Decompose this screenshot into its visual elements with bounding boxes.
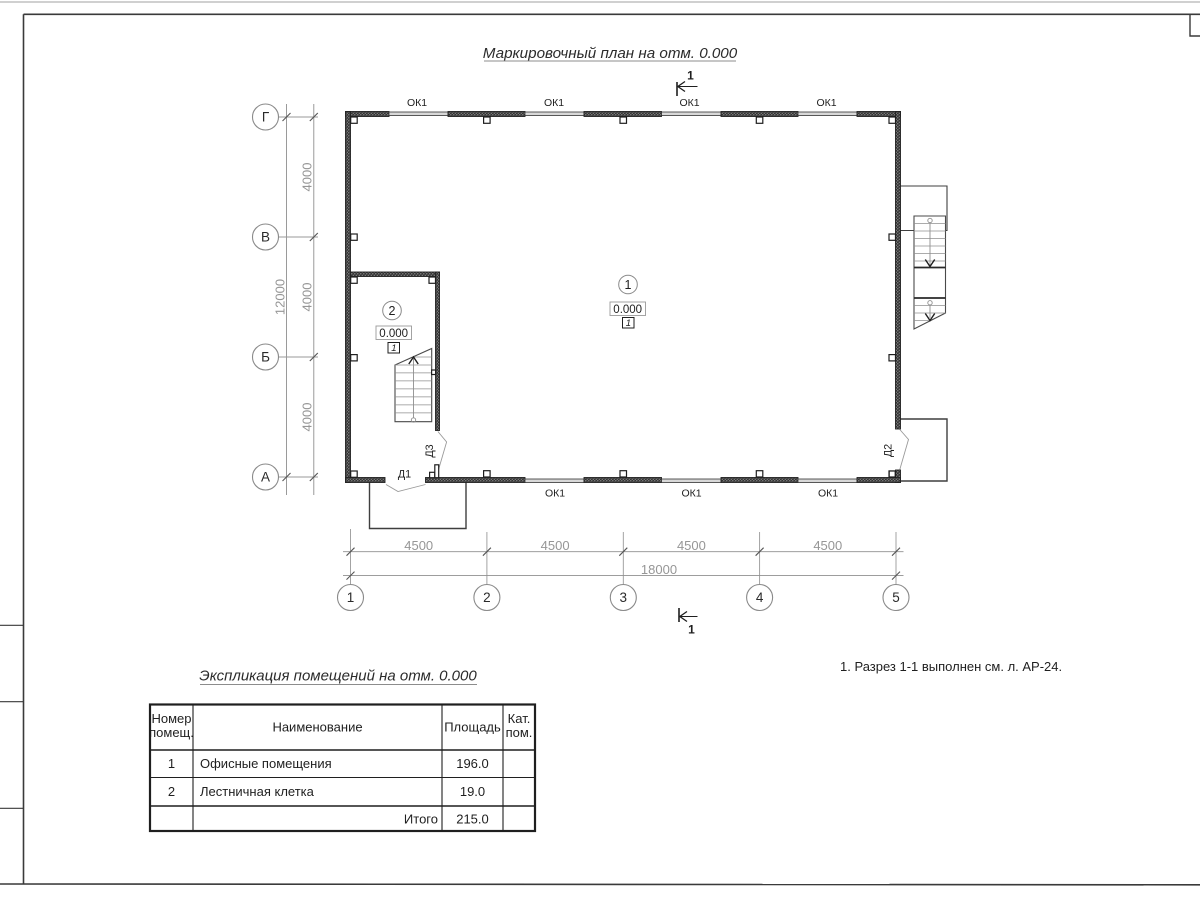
svg-text:Д2: Д2 [883, 444, 895, 457]
svg-text:1: 1 [626, 318, 631, 329]
svg-text:Кат.: Кат. [508, 711, 531, 726]
svg-text:4500: 4500 [813, 538, 842, 553]
svg-text:1: 1 [168, 756, 175, 771]
svg-text:1: 1 [347, 590, 355, 605]
svg-text:Офисные помещения: Офисные помещения [200, 756, 332, 771]
svg-text:4000: 4000 [300, 283, 315, 312]
svg-text:4000: 4000 [300, 163, 315, 192]
svg-text:19.0: 19.0 [460, 784, 485, 799]
svg-text:Маркировочный план на отм. 0.0: Маркировочный план на отм. 0.000 [483, 45, 738, 62]
svg-text:ОК1: ОК1 [679, 97, 699, 109]
svg-text:ОК1: ОК1 [681, 487, 701, 499]
svg-text:1. Разрез 1-1 выполнен см. л.: 1. Разрез 1-1 выполнен см. л. АР-24. [840, 659, 1062, 674]
svg-text:Д3: Д3 [424, 444, 436, 457]
svg-text:0.000: 0.000 [613, 304, 642, 316]
svg-text:4000: 4000 [300, 403, 315, 432]
svg-text:2: 2 [483, 590, 491, 605]
svg-text:ОК1: ОК1 [816, 97, 836, 109]
svg-text:ОК1: ОК1 [545, 487, 565, 499]
svg-text:Экспликация помещений на отм.: Экспликация помещений на отм. 0.000 [199, 668, 477, 685]
svg-text:1: 1 [687, 69, 694, 83]
svg-text:ОК1: ОК1 [818, 487, 838, 499]
svg-text:Б: Б [261, 350, 270, 365]
svg-text:4500: 4500 [541, 538, 570, 553]
svg-text:пом.: пом. [506, 725, 533, 740]
svg-text:Лестничная клетка: Лестничная клетка [200, 784, 315, 799]
svg-text:Номер: Номер [151, 711, 191, 726]
svg-text:Площадь: Площадь [444, 720, 501, 735]
svg-text:4: 4 [756, 590, 764, 605]
svg-text:196.0: 196.0 [456, 756, 489, 771]
svg-text:ОК1: ОК1 [407, 97, 427, 109]
svg-text:В: В [261, 230, 270, 245]
svg-text:2: 2 [389, 304, 396, 318]
svg-text:0.000: 0.000 [379, 328, 408, 340]
svg-text:А: А [261, 470, 270, 485]
svg-text:12000: 12000 [273, 279, 288, 315]
svg-text:4500: 4500 [404, 538, 433, 553]
svg-text:помещ.: помещ. [149, 725, 194, 740]
svg-text:18000: 18000 [641, 562, 677, 577]
svg-text:Д1: Д1 [398, 469, 411, 481]
svg-text:Г: Г [262, 110, 270, 125]
svg-text:1: 1 [688, 623, 695, 637]
svg-text:Наименование: Наименование [272, 720, 362, 735]
svg-text:1: 1 [625, 278, 632, 292]
svg-text:1: 1 [391, 343, 396, 354]
svg-text:ОК1: ОК1 [544, 97, 564, 109]
svg-text:215.0: 215.0 [456, 812, 489, 827]
svg-text:3: 3 [620, 590, 628, 605]
svg-text:4500: 4500 [677, 538, 706, 553]
svg-text:Итого: Итого [404, 812, 438, 827]
svg-text:5: 5 [892, 590, 900, 605]
svg-text:2: 2 [168, 784, 175, 799]
